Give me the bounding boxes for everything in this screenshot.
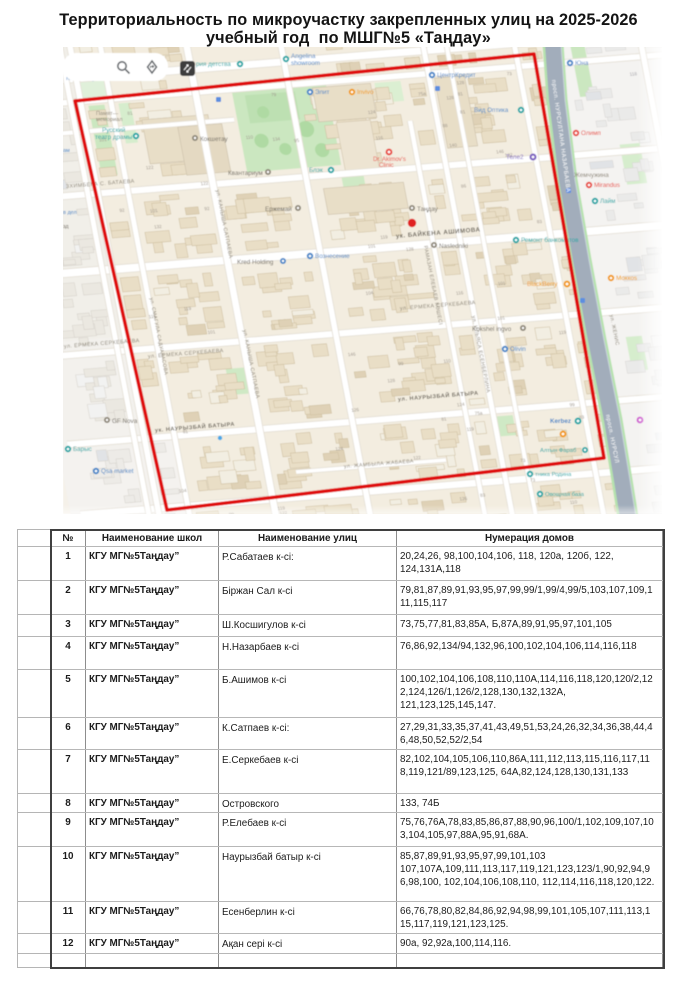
svg-text:Nasledniki: Nasledniki xyxy=(439,243,468,250)
svg-text:Angelina: Angelina xyxy=(291,53,316,60)
svg-text:Моккоs: Моккоs xyxy=(616,275,637,282)
svg-text:Русский: Русский xyxy=(102,126,126,134)
svg-text:BlackBerry: BlackBerry xyxy=(527,281,558,288)
svg-text:ам: ам xyxy=(63,148,70,154)
svg-text:Барыс: Барыс xyxy=(73,446,92,453)
svg-text:Вид Оптика: Вид Оптика xyxy=(474,107,509,114)
svg-text:Теле2: Теле2 xyxy=(506,154,524,161)
svg-text:Olivin: Olivin xyxy=(510,346,526,353)
svg-text:Овощная база: Овощная база xyxy=(545,492,585,498)
svg-text:Алтын Фараб: Алтын Фараб xyxy=(540,448,577,454)
svg-text:Ремонт банкоматов: Ремонт банкоматов xyxy=(521,236,579,244)
svg-text:мемориал: мемориал xyxy=(96,117,123,123)
svg-text:Invivo: Invivo xyxy=(357,89,374,96)
svg-text:театр драмы: театр драмы xyxy=(95,134,133,141)
svg-text:Clinic: Clinic xyxy=(379,163,394,169)
svg-text:тника Родина: тника Родина xyxy=(535,472,572,478)
svg-text:зд: зд xyxy=(63,224,69,230)
svg-text:в дел: в дел xyxy=(63,210,77,216)
svg-text:Блэк: Блэк xyxy=(309,167,323,174)
svg-text:Олимп: Олимп xyxy=(581,130,601,137)
svg-text:ЦентрКредит: ЦентрКредит xyxy=(437,72,476,79)
svg-text:Квантариум: Квантариум xyxy=(228,170,263,177)
svg-text:Лайм: Лайм xyxy=(600,197,615,205)
svg-text:GF Nova: GF Nova xyxy=(112,418,138,425)
svg-text:Mirandus: Mirandus xyxy=(594,182,620,189)
svg-text:Вознесение: Вознесение xyxy=(315,253,350,260)
svg-text:Qsa market: Qsa market xyxy=(101,468,134,475)
svg-text:showroom: showroom xyxy=(291,60,320,67)
svg-text:рия детства: рия детства xyxy=(196,61,231,68)
svg-text:Ержемай: Ержемай xyxy=(265,205,292,213)
svg-text:Жемчужина: Жемчужина xyxy=(574,172,609,179)
svg-text:Kred Holding: Kred Holding xyxy=(237,259,274,266)
svg-text:Таңдау: Таңдау xyxy=(417,206,439,213)
svg-text:Кокшетау: Кокшетау xyxy=(200,136,229,143)
svg-text:Элит: Элит xyxy=(315,89,330,96)
svg-text:Kerbez: Kerbez xyxy=(550,418,571,425)
svg-text:Юна: Юна xyxy=(575,60,589,67)
